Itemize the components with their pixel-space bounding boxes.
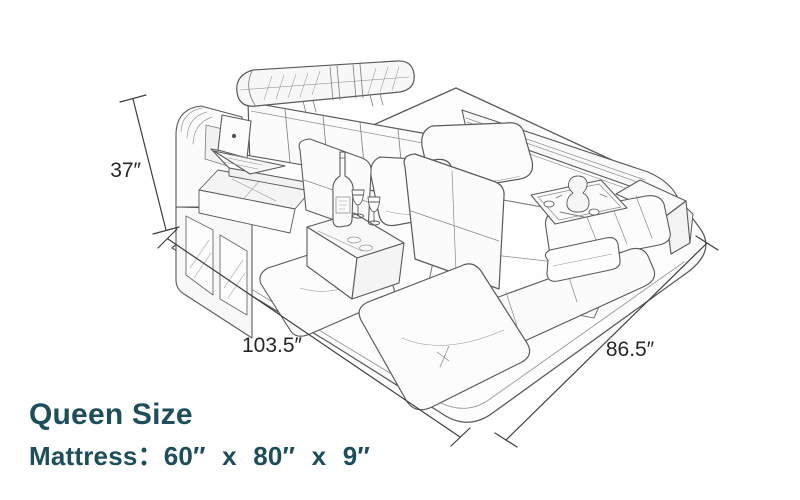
caption: Queen Size Mattress：60″ x 80″ x 9″ — [29, 398, 370, 473]
diagram-canvas: 37″ 103.5″ 86.5″ Queen Size Mattress：60″… — [0, 0, 800, 500]
size-title: Queen Size — [29, 398, 370, 431]
tea-cup — [544, 201, 554, 207]
mattress-spec: Mattress：60″ x 80″ x 9″ — [29, 436, 370, 473]
laptop-logo — [232, 134, 236, 138]
depth-dimension-label: 86.5″ — [606, 338, 655, 361]
tea-cup — [589, 209, 599, 215]
bolster-headrest — [237, 61, 414, 113]
width-dimension-label: 103.5″ — [242, 334, 303, 357]
height-dimension-label: 37″ — [110, 159, 141, 182]
